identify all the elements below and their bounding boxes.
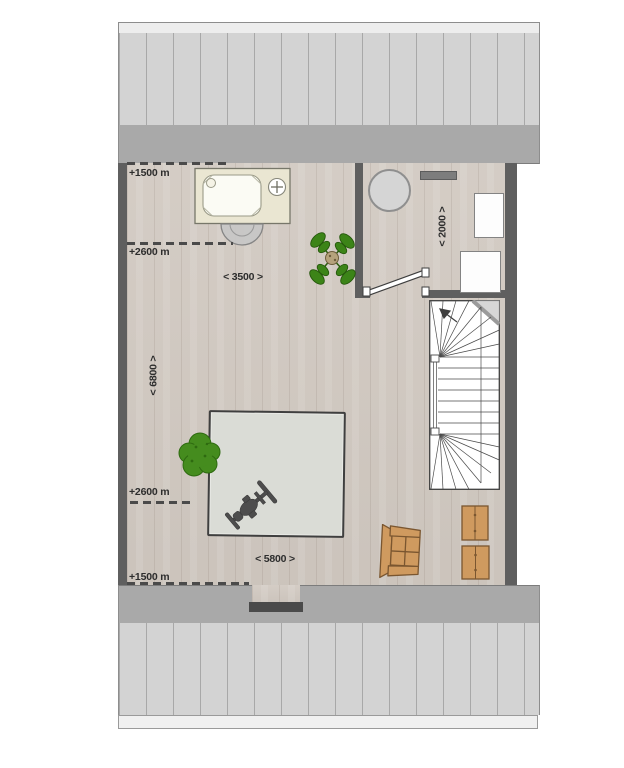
storage-box-lower (461, 545, 491, 581)
wall-right (505, 163, 517, 585)
headroom-line-top-1 (127, 162, 231, 165)
dimension-label-width-top: < 3500 > (213, 271, 273, 284)
bathtub-icon (194, 167, 292, 253)
headroom-line-bottom-1 (130, 501, 194, 504)
height-label-bottom-left-upper: +2600 m (129, 486, 169, 499)
wall-vent-icon (420, 171, 457, 180)
roof-bottom-edge (118, 715, 538, 729)
storage-box-upper (461, 505, 490, 542)
dimension-label-height-left: < 6800 > (148, 346, 161, 406)
cabinet-upper (474, 193, 504, 238)
headroom-line-top-2 (127, 242, 233, 245)
height-label-bottom-left-lower: +1500 m (129, 571, 169, 584)
dormer-window-icon (249, 602, 303, 612)
potted-plant-icon (308, 230, 358, 288)
roof-top-eave (118, 125, 540, 164)
armchair-icon (378, 524, 444, 586)
dimension-label-width-bottom: < 5800 > (245, 553, 305, 566)
floor-plan-canvas: +1500 m +2600 m < 3500 > < 6800 > < 2000… (0, 0, 624, 768)
height-label-top-left-upper: +1500 m (129, 167, 169, 180)
roof-bottom-panels (118, 623, 540, 715)
door-leaf-icon (360, 263, 435, 303)
wall-left (118, 163, 127, 585)
height-label-top-left-lower: +2600 m (129, 246, 169, 259)
dormer-floor-notch (252, 585, 300, 603)
dimension-label-height-right: < 2000 > (437, 197, 450, 257)
cabinet-lower (460, 251, 501, 293)
roof-bottom-eave (118, 585, 540, 624)
exercise-bike-icon (211, 471, 285, 545)
staircase-icon (429, 300, 500, 490)
round-table-icon (368, 169, 411, 212)
roof-top-panels (118, 33, 540, 125)
